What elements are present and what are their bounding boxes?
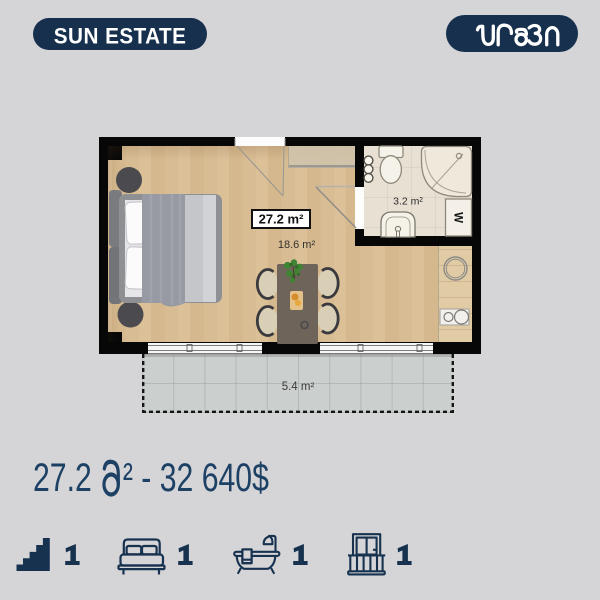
svg-text:3.2 m²: 3.2 m²: [393, 196, 423, 208]
svg-text:27.2 m²: 27.2 m²: [259, 212, 304, 227]
svg-text:5.4 m²: 5.4 m²: [282, 381, 315, 393]
svg-text:18.6 m²: 18.6 m²: [278, 239, 316, 251]
svg-text:W: W: [452, 212, 464, 223]
